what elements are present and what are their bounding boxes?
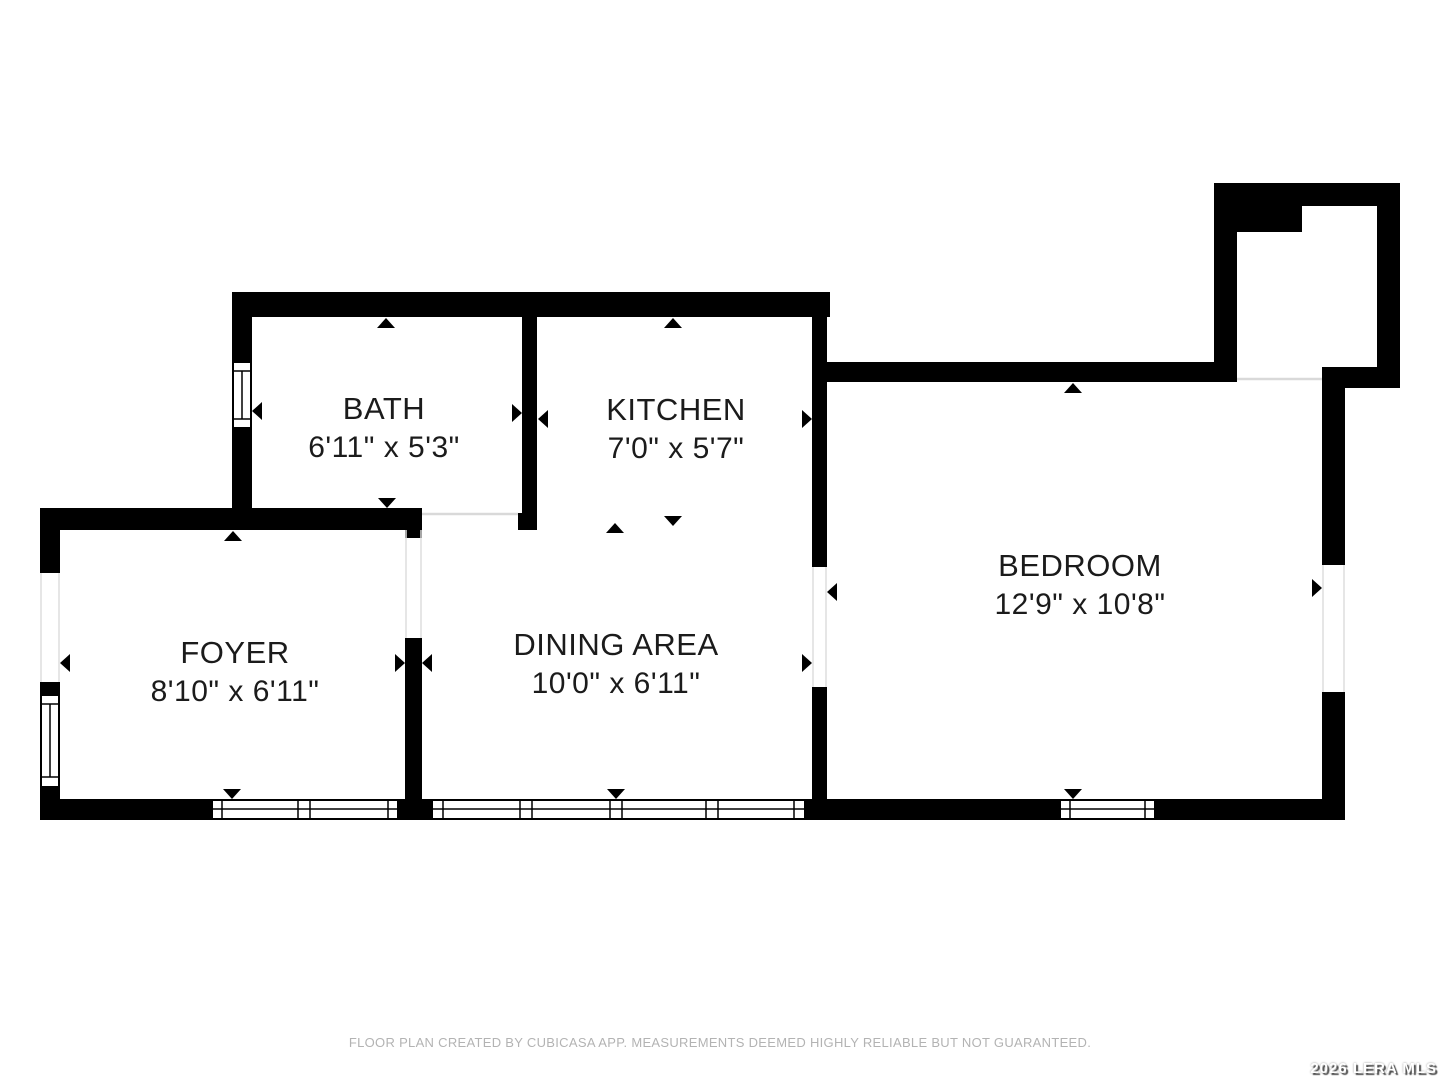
wall-segment (518, 513, 537, 530)
door-marker-icon (664, 318, 682, 328)
door-marker-icon (378, 498, 396, 508)
room-name: KITCHEN (606, 393, 746, 427)
windows (41, 362, 1155, 819)
door-marker-icon (827, 583, 837, 601)
door-marker-icon (395, 654, 405, 672)
wall-segment (405, 638, 422, 799)
floor-plan-canvas: BATH 6'11" x 5'3" KITCHEN 7'0" x 5'7" FO… (0, 0, 1440, 1080)
door-marker-icon (60, 654, 70, 672)
window (41, 695, 59, 787)
room-dimensions: 8'10" x 6'11" (151, 675, 320, 708)
door-marker-icon (1064, 383, 1082, 393)
window (233, 362, 251, 428)
wall-segment (40, 682, 60, 695)
room-dimensions: 12'9" x 10'8" (994, 588, 1165, 621)
window (432, 800, 805, 819)
door-marker-icon (1312, 579, 1322, 597)
walls (40, 183, 1400, 820)
room-label-dining-area: DINING AREA 10'0" x 6'11" (513, 628, 718, 700)
room-label-bedroom: BEDROOM 12'9" x 10'8" (994, 549, 1165, 621)
door-marker-icon (538, 410, 548, 428)
footer-disclaimer: FLOOR PLAN CREATED BY CUBICASA APP. MEAS… (0, 1035, 1440, 1050)
room-label-foyer: FOYER 8'10" x 6'11" (151, 636, 320, 708)
room-name: BEDROOM (994, 549, 1165, 583)
room-dimensions: 6'11" x 5'3" (308, 431, 460, 464)
door-marker-icon (252, 402, 262, 420)
wall-segment (1322, 367, 1400, 388)
door-marker-icon (422, 654, 432, 672)
room-name: BATH (308, 392, 460, 426)
door-marker-icon (224, 531, 242, 541)
door-marker-icon (802, 654, 812, 672)
wall-segment (812, 362, 1237, 382)
wall-segment (1322, 388, 1345, 565)
mls-watermark: 2026 LERA MLS (1310, 1060, 1437, 1077)
wall-segment (405, 530, 422, 538)
door-marker-icon (377, 318, 395, 328)
wall-segment (522, 292, 537, 513)
wall-segment (40, 508, 422, 530)
door-marker-icon (664, 516, 682, 526)
room-name: FOYER (151, 636, 320, 670)
window (1060, 800, 1155, 819)
wall-segment (812, 292, 827, 567)
wall-segment (1214, 183, 1237, 380)
door-marker-icon (512, 404, 522, 422)
opening-thresholds (422, 379, 1322, 514)
wall-segment (1214, 183, 1400, 206)
room-dimensions: 7'0" x 5'7" (606, 432, 746, 465)
wall-segment (40, 508, 60, 573)
wall-segment (805, 799, 1060, 820)
wall-segment (232, 292, 252, 362)
window (212, 800, 398, 819)
wall-segment (40, 799, 212, 820)
wall-segment (1155, 799, 1345, 820)
door-marker-icon (223, 789, 241, 799)
door-marker-icon (606, 523, 624, 533)
wall-segment (398, 799, 432, 820)
floor-plan-drawing (0, 0, 1440, 1080)
room-label-bath: BATH 6'11" x 5'3" (308, 392, 460, 464)
room-dimensions: 10'0" x 6'11" (513, 667, 718, 700)
room-label-kitchen: KITCHEN 7'0" x 5'7" (606, 393, 746, 465)
door-marker-icon (1064, 789, 1082, 799)
door-marker-icon (802, 410, 812, 428)
wall-segment (1237, 206, 1302, 232)
wall-segment (1377, 183, 1400, 388)
door-marker-icon (607, 789, 625, 799)
room-name: DINING AREA (513, 628, 718, 662)
wall-segment (812, 687, 827, 799)
